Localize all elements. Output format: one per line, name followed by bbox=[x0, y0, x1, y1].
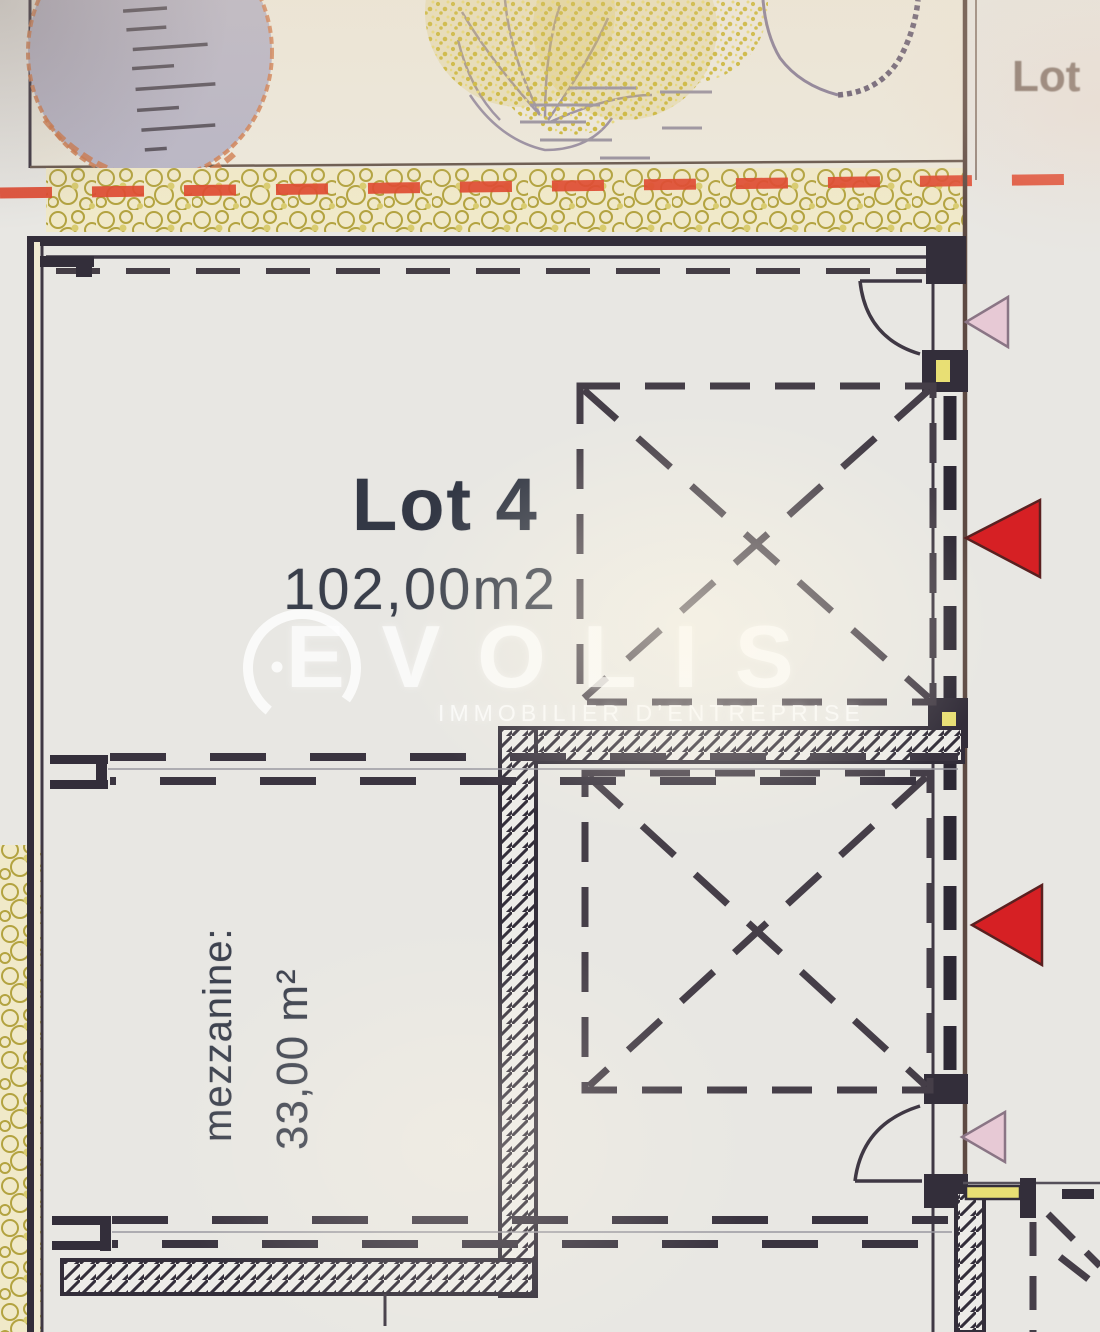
red-triangle-marker-upper bbox=[966, 500, 1040, 577]
lot-title: Lot 4 bbox=[352, 462, 539, 547]
door-top-right bbox=[860, 281, 922, 354]
wall-left-fill bbox=[34, 242, 40, 1332]
mezzanine-area: 33,00 m² bbox=[268, 968, 318, 1150]
corner-block-top-right bbox=[926, 236, 966, 284]
adjacent-lot-label: Lot bbox=[1012, 52, 1080, 102]
red-triangle-marker-lower bbox=[972, 885, 1042, 965]
mezzanine-label: mezzanine: bbox=[196, 927, 241, 1142]
post-mezzanine bbox=[96, 755, 107, 789]
post-top-left-step bbox=[76, 267, 92, 277]
hatched-wall-vertical bbox=[500, 728, 536, 1296]
hatched-wall-bottom bbox=[62, 1260, 534, 1294]
pink-triangle-marker-top bbox=[966, 297, 1008, 347]
floor-plan-photo: Lot 4 102,00m2 Lot mezzanine: 33,00 m² E… bbox=[0, 0, 1100, 1332]
post-top-left bbox=[40, 256, 94, 267]
watermark-tagline: IMMOBILIER D’ENTREPRISE bbox=[438, 700, 865, 727]
watermark-brand: EVOLIS bbox=[286, 606, 831, 708]
pink-triangle-marker-bottom bbox=[962, 1112, 1005, 1162]
wall-markers bbox=[962, 297, 1042, 1162]
gravel-strip-top bbox=[46, 168, 963, 232]
post-lower bbox=[100, 1216, 111, 1251]
void-crossed-box-lower bbox=[585, 773, 930, 1090]
door-bottom-right bbox=[855, 1106, 922, 1181]
wall-left-outer bbox=[27, 236, 34, 1332]
hatched-wall-bottom-right bbox=[956, 1192, 984, 1332]
wall-top-outer bbox=[27, 236, 963, 246]
jamb-highlight-1 bbox=[936, 360, 950, 382]
